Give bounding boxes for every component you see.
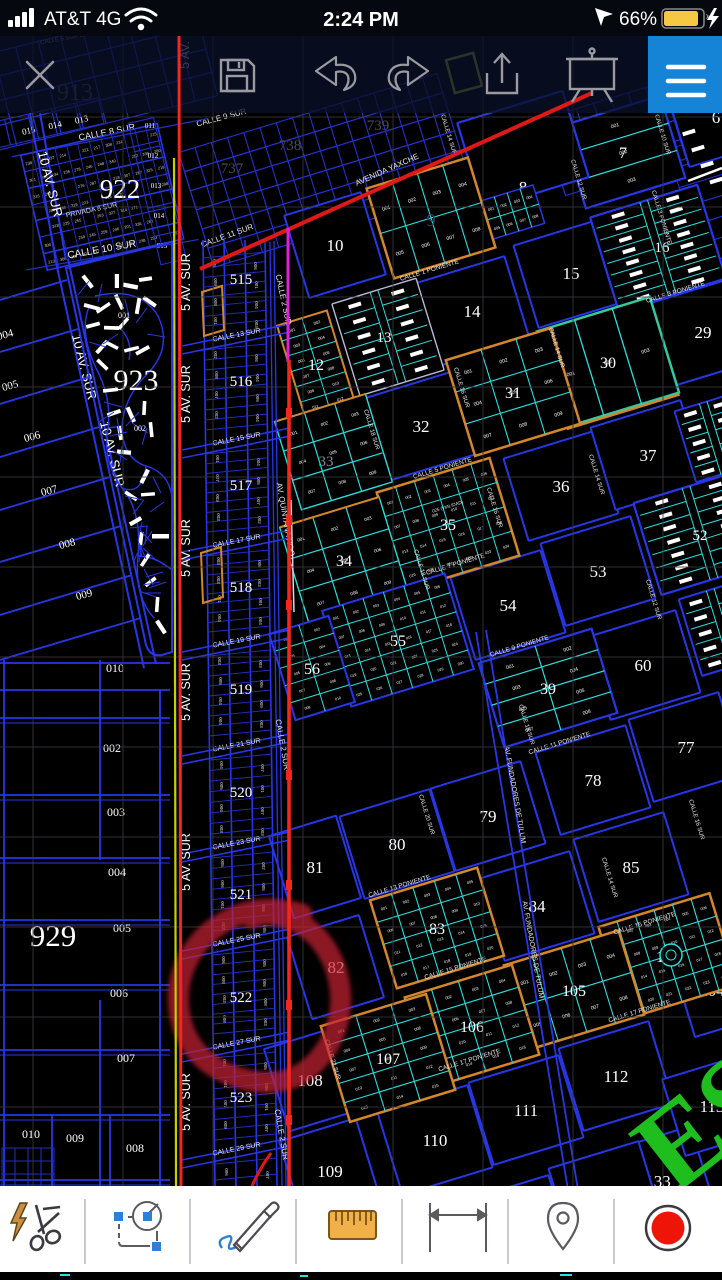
svg-text:009: 009: [213, 278, 218, 286]
svg-text:003: 003: [216, 576, 221, 584]
svg-text:518: 518: [230, 580, 253, 596]
svg-text:111: 111: [514, 1101, 538, 1120]
svg-text:006: 006: [262, 979, 267, 987]
svg-text:008: 008: [214, 371, 219, 379]
svg-text:001: 001: [254, 281, 259, 289]
svg-text:521: 521: [230, 887, 253, 903]
svg-text:009: 009: [66, 1131, 84, 1145]
svg-text:005: 005: [220, 859, 225, 867]
svg-text:60: 60: [635, 656, 652, 675]
svg-text:004: 004: [218, 717, 223, 725]
svg-text:010: 010: [106, 661, 124, 675]
svg-text:56: 56: [304, 661, 320, 678]
svg-text:002: 002: [214, 411, 219, 419]
svg-text:12: 12: [308, 357, 324, 374]
svg-text:112: 112: [604, 1067, 629, 1086]
svg-text:29: 29: [695, 323, 712, 342]
svg-text:003: 003: [219, 825, 224, 833]
svg-text:007: 007: [265, 1171, 270, 1179]
svg-text:929: 929: [30, 918, 77, 953]
svg-text:004: 004: [217, 614, 222, 622]
svg-text:80: 80: [389, 835, 406, 854]
svg-text:005: 005: [262, 925, 267, 933]
svg-text:AT&T 4G: AT&T 4G: [44, 9, 121, 30]
svg-text:001: 001: [258, 598, 263, 606]
svg-text:15: 15: [563, 264, 580, 283]
svg-text:006: 006: [220, 880, 225, 888]
svg-text:107: 107: [376, 1051, 400, 1068]
svg-text:923: 923: [114, 364, 159, 397]
svg-text:003: 003: [217, 657, 222, 665]
svg-text:54: 54: [500, 596, 518, 615]
svg-text:005: 005: [113, 921, 131, 935]
svg-text:53: 53: [590, 562, 607, 581]
svg-text:003: 003: [263, 1018, 268, 1026]
svg-text:30: 30: [600, 355, 616, 372]
svg-text:003: 003: [216, 557, 221, 565]
svg-text:008: 008: [263, 998, 268, 1006]
svg-text:003: 003: [216, 513, 221, 521]
svg-text:013: 013: [151, 182, 162, 190]
svg-text:004: 004: [218, 697, 223, 705]
svg-text:011: 011: [145, 122, 156, 130]
svg-text:003: 003: [257, 579, 262, 587]
svg-text:10: 10: [327, 236, 344, 255]
svg-text:517: 517: [230, 478, 253, 494]
svg-text:001: 001: [213, 317, 218, 325]
svg-text:014: 014: [154, 212, 165, 220]
svg-text:009: 009: [223, 1121, 228, 1129]
svg-text:005: 005: [219, 782, 224, 790]
svg-text:002: 002: [261, 862, 266, 870]
svg-text:003: 003: [258, 660, 263, 668]
svg-text:83: 83: [429, 921, 445, 938]
svg-text:516: 516: [230, 374, 253, 390]
svg-text:522: 522: [230, 990, 253, 1006]
svg-text:36: 36: [553, 477, 570, 496]
svg-text:006: 006: [253, 262, 258, 270]
svg-text:006: 006: [219, 804, 224, 812]
svg-text:007: 007: [260, 807, 265, 815]
svg-text:519: 519: [230, 682, 253, 698]
svg-text:001: 001: [118, 311, 130, 320]
svg-text:001: 001: [220, 901, 225, 909]
svg-text:922: 922: [100, 174, 141, 204]
svg-text:007: 007: [264, 1124, 269, 1132]
svg-text:008: 008: [126, 1141, 144, 1155]
svg-text:5 AV. SUR: 5 AV. SUR: [179, 253, 193, 311]
svg-text:006: 006: [254, 354, 259, 362]
svg-text:2:24 PM: 2:24 PM: [323, 9, 399, 31]
svg-text:81: 81: [307, 858, 324, 877]
svg-text:004: 004: [219, 761, 224, 769]
svg-text:002: 002: [103, 741, 121, 755]
svg-text:010: 010: [22, 1127, 40, 1141]
svg-text:009: 009: [255, 394, 260, 402]
svg-text:001: 001: [260, 785, 265, 793]
svg-text:005: 005: [256, 477, 261, 485]
svg-text:005: 005: [218, 677, 223, 685]
svg-text:003: 003: [107, 805, 125, 819]
svg-text:007: 007: [215, 474, 220, 482]
svg-text:105: 105: [562, 983, 586, 1000]
svg-text:008: 008: [222, 1015, 227, 1023]
svg-text:739: 739: [367, 118, 390, 134]
svg-text:78: 78: [585, 771, 602, 790]
svg-text:106: 106: [460, 1019, 484, 1036]
svg-text:002: 002: [134, 424, 146, 433]
svg-text:002: 002: [213, 351, 218, 359]
svg-text:003: 003: [260, 828, 265, 836]
svg-text:007: 007: [256, 497, 261, 505]
svg-text:007: 007: [117, 1051, 135, 1065]
svg-text:515: 515: [230, 272, 253, 288]
svg-text:003: 003: [222, 995, 227, 1003]
svg-text:006: 006: [110, 986, 128, 1000]
svg-text:005: 005: [262, 959, 267, 967]
svg-text:32: 32: [413, 417, 430, 436]
svg-text:004: 004: [258, 617, 263, 625]
svg-text:004: 004: [255, 374, 260, 382]
svg-text:14: 14: [464, 302, 482, 321]
svg-text:66%: 66%: [619, 9, 657, 30]
svg-text:005: 005: [263, 1062, 268, 1070]
svg-text:52: 52: [693, 528, 708, 544]
svg-text:007: 007: [214, 391, 219, 399]
svg-text:002: 002: [257, 516, 262, 524]
svg-text:55: 55: [390, 633, 406, 650]
svg-text:007: 007: [260, 764, 265, 772]
svg-text:523: 523: [230, 1090, 253, 1106]
svg-text:110: 110: [423, 1131, 448, 1150]
svg-text:9: 9: [427, 210, 436, 230]
svg-text:006: 006: [221, 956, 226, 964]
svg-text:006: 006: [224, 1168, 229, 1176]
svg-text:37: 37: [640, 446, 658, 465]
svg-text:109: 109: [317, 1162, 343, 1181]
svg-text:008: 008: [213, 298, 218, 306]
svg-text:35: 35: [440, 517, 456, 534]
svg-text:005: 005: [261, 883, 266, 891]
svg-text:001: 001: [215, 455, 220, 463]
svg-text:39: 39: [540, 681, 556, 698]
svg-text:009: 009: [259, 700, 264, 708]
svg-text:004: 004: [256, 458, 261, 466]
svg-text:004: 004: [254, 301, 259, 309]
svg-text:33: 33: [319, 454, 334, 470]
svg-text:79: 79: [480, 807, 497, 826]
svg-text:7: 7: [619, 145, 627, 162]
svg-text:737: 737: [221, 161, 244, 177]
svg-text:004: 004: [255, 414, 260, 422]
svg-text:13: 13: [377, 330, 392, 346]
svg-text:003: 003: [259, 720, 264, 728]
svg-text:012: 012: [148, 152, 159, 160]
svg-text:003: 003: [215, 494, 220, 502]
svg-text:520: 520: [230, 785, 253, 801]
svg-text:006: 006: [259, 680, 264, 688]
svg-text:008: 008: [221, 976, 226, 984]
svg-text:85: 85: [623, 858, 640, 877]
svg-text:31: 31: [505, 385, 521, 402]
svg-text:738: 738: [279, 138, 302, 154]
